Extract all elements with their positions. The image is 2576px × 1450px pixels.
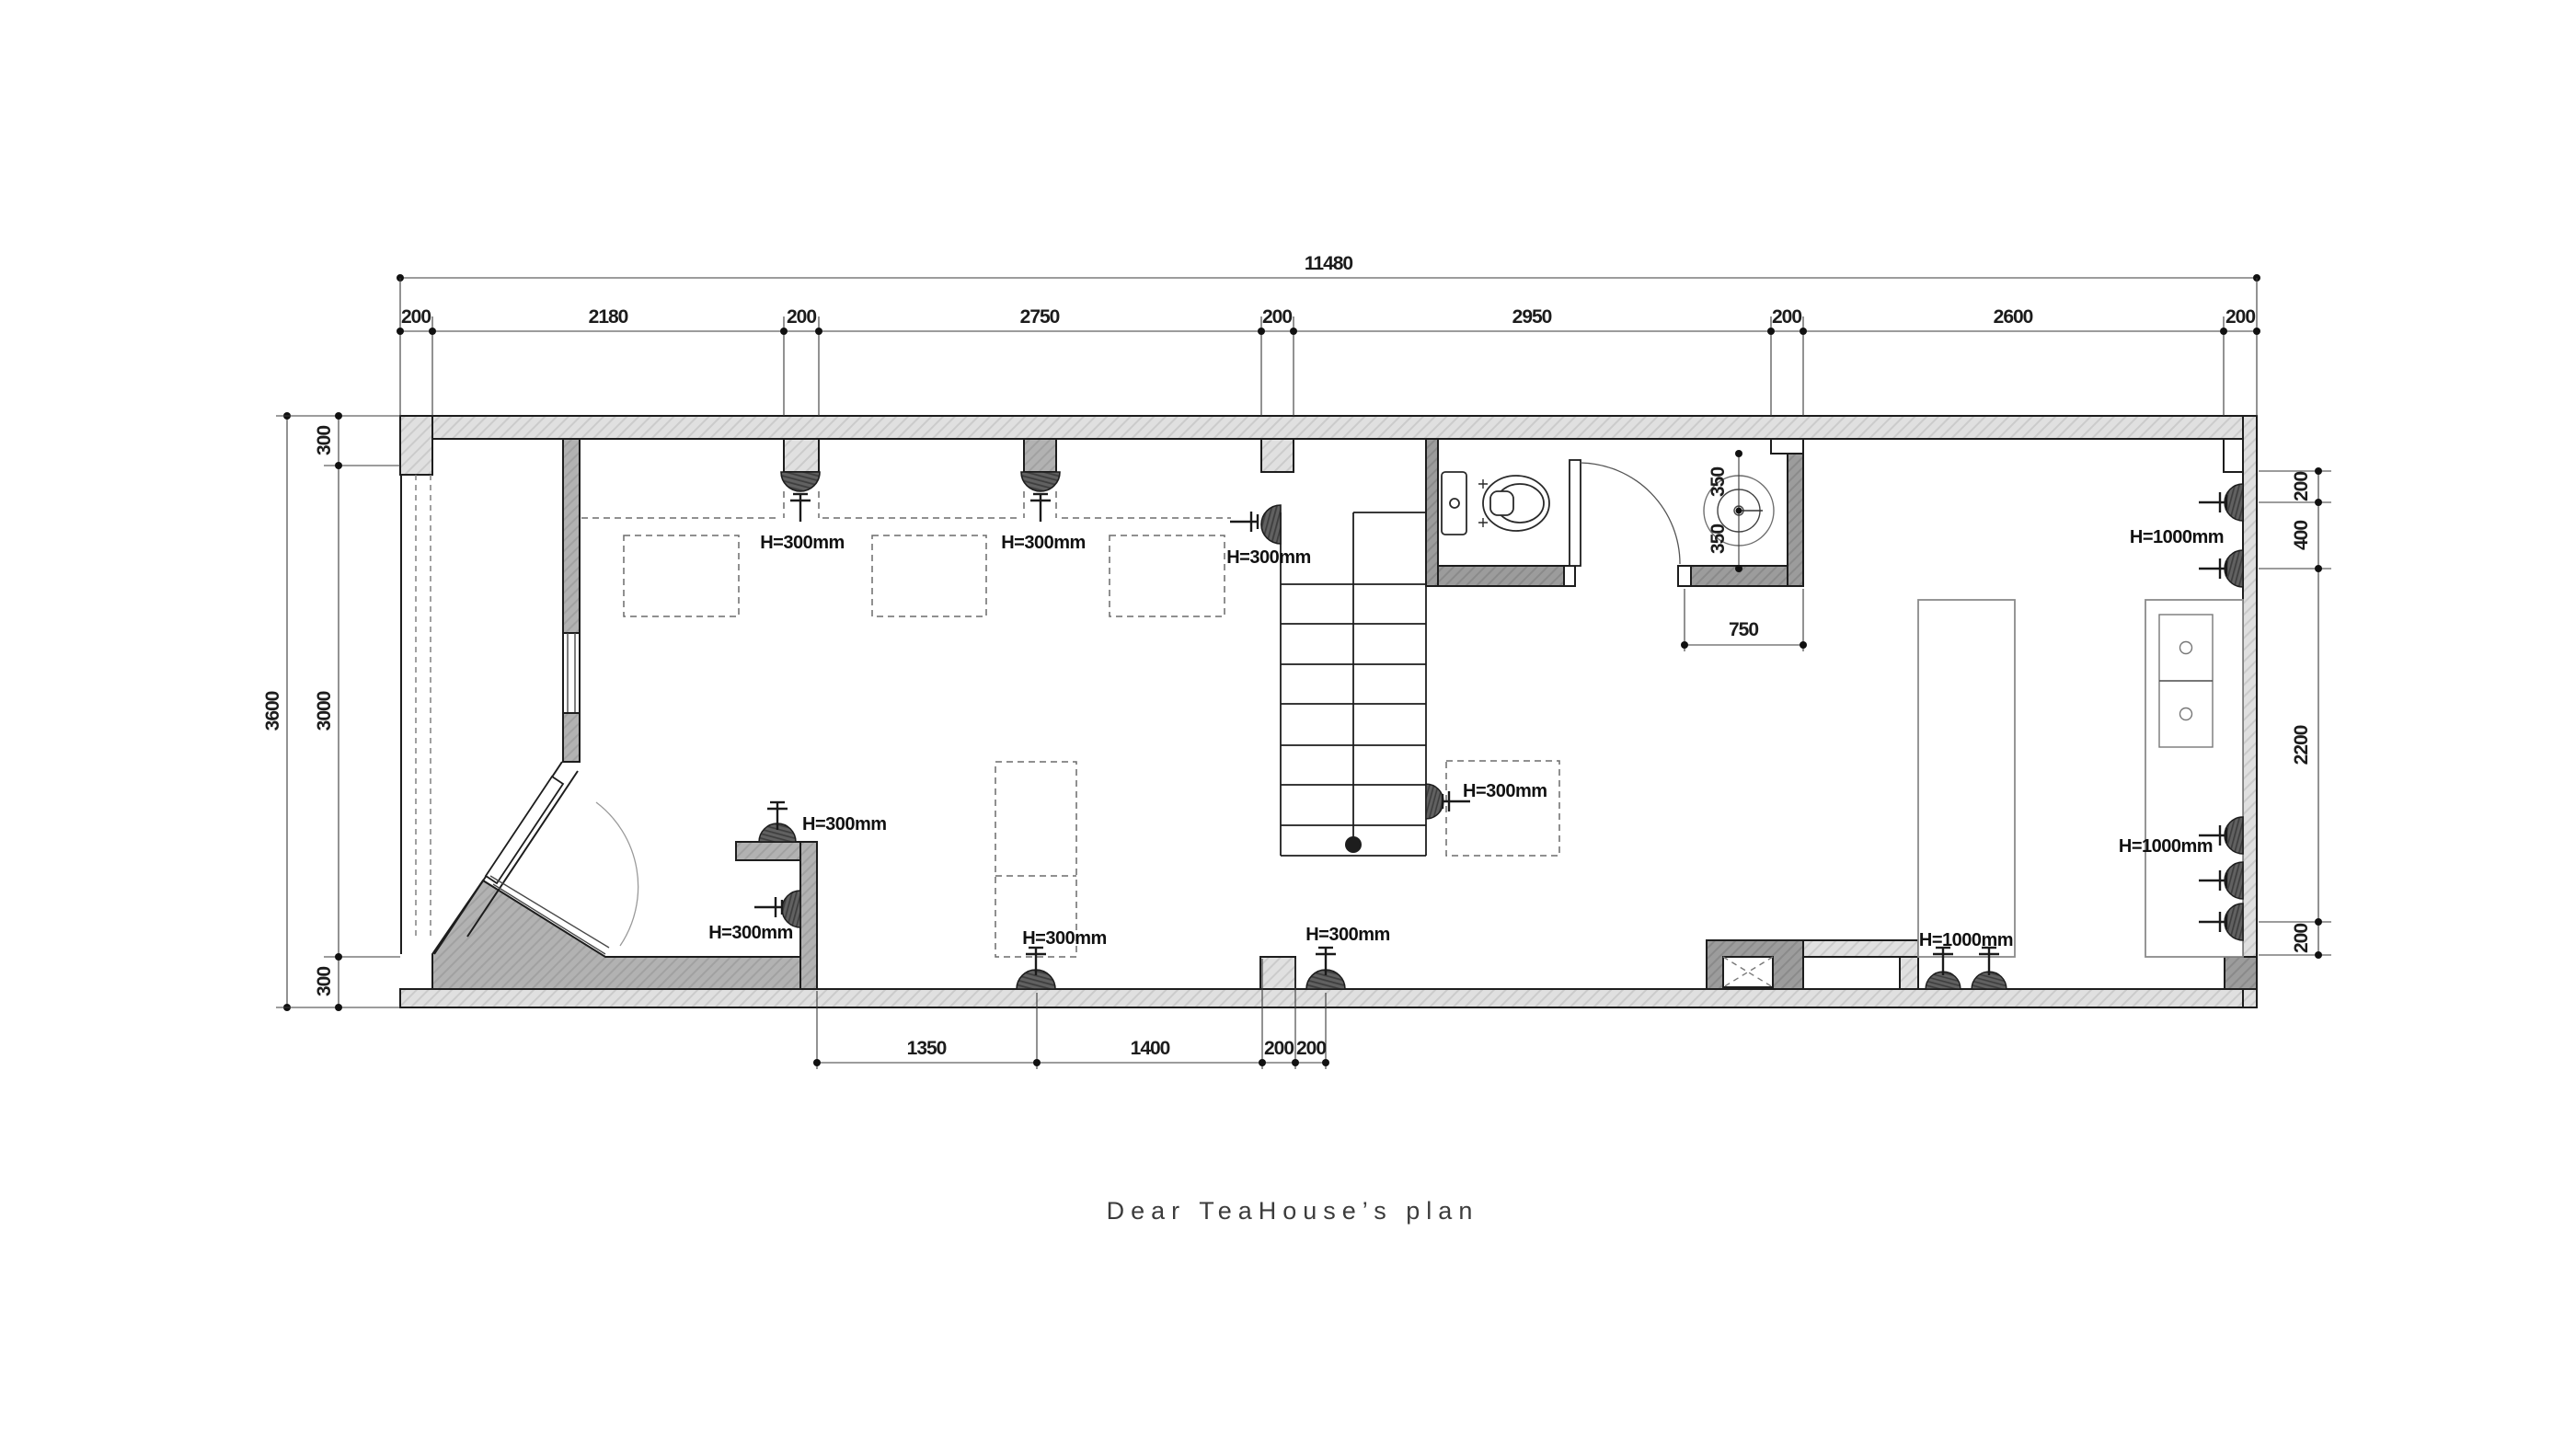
dim-extension-lines (817, 959, 1326, 1069)
dim-text: 200 (2225, 306, 2255, 328)
height-label: H=1000mm (2130, 527, 2224, 547)
pier-stair (1261, 439, 1294, 472)
low-counter (1803, 940, 1918, 957)
floor-plan-drawing: H=300mm H=300mm H=300mm H=300mm H=300mm … (0, 0, 2576, 1450)
plant-icon (2199, 492, 2227, 512)
plant-icon (754, 897, 783, 917)
toilet-icon (1442, 472, 1549, 535)
height-label: H=300mm (1022, 928, 1107, 949)
service-block (1707, 940, 1918, 989)
dimension-left: 3600 300 3000 300 (262, 412, 400, 1011)
table-low (872, 535, 986, 616)
stool (781, 472, 820, 491)
stools (759, 472, 2243, 989)
height-label: H=300mm (1463, 781, 1547, 801)
plant-icon (1030, 493, 1051, 522)
height-label: H=300mm (1305, 925, 1390, 945)
door-leaf (1570, 460, 1581, 566)
dim-text: 11480 (1305, 253, 1353, 274)
dim-text: 2750 (1020, 306, 1060, 328)
dim-text: 2950 (1512, 306, 1552, 328)
dim-extension-lines (400, 278, 2257, 416)
height-label: H=300mm (760, 533, 845, 553)
low-tables (581, 491, 1559, 957)
vestibule-window (563, 633, 580, 713)
floor-plan-page: H=300mm H=300mm H=300mm H=300mm H=300mm … (0, 0, 2576, 1450)
entry-zone (432, 762, 800, 989)
pier-column (784, 439, 819, 472)
dim-text: 1350 (907, 1038, 947, 1059)
stair-walk-start-dot (1345, 836, 1362, 853)
wall-top (400, 416, 2257, 439)
dim-text: 1400 (1131, 1038, 1170, 1059)
low-counter-leg (1900, 957, 1918, 989)
wall-vestibule (563, 713, 580, 762)
dim-text: 2180 (589, 306, 628, 328)
dim-text: 400 (2291, 521, 2312, 550)
stool (1021, 472, 1060, 491)
entry-door-swing-arc (596, 802, 638, 946)
dimension-bottom: 1350 1400 200 200 (813, 959, 1329, 1069)
plan-title: Dear TeaHouse’s plan (1107, 1197, 1479, 1225)
height-label: H=1000mm (1919, 930, 2013, 950)
entry-door-leaf-open (486, 777, 563, 883)
wall-vestibule (563, 439, 580, 633)
dim-text: 200 (1264, 1038, 1294, 1059)
height-label: H=1000mm (2119, 836, 2213, 857)
dim-text: 300 (314, 967, 335, 996)
dim-text: 200 (1772, 306, 1801, 328)
pier-top-left (400, 416, 432, 475)
height-label: H=300mm (1001, 533, 1086, 553)
dim-text: 200 (2291, 472, 2312, 501)
door-jamb (1678, 566, 1691, 586)
table-low (624, 535, 739, 616)
plant-icon (790, 493, 811, 522)
wall-notch-wc (1771, 439, 1803, 454)
stool (1426, 784, 1443, 819)
storefront-glazing (401, 475, 431, 954)
height-label: H=300mm (708, 923, 793, 943)
dim-text: 3000 (314, 691, 335, 731)
dim-text: 200 (401, 306, 431, 328)
table-low (1110, 535, 1225, 616)
dim-text: 350 (1708, 467, 1729, 497)
wall-wc-bottom (1438, 566, 1564, 586)
dim-text: 200 (1262, 306, 1292, 328)
wall-wc-bottom (1691, 566, 1803, 586)
dim-text: 200 (787, 306, 816, 328)
dim-text: 200 (1296, 1038, 1326, 1059)
bathroom-door (1564, 460, 1691, 586)
dimension-right: 200 400 2200 200 (2259, 467, 2331, 959)
island-counter (1918, 600, 2015, 957)
stool (1261, 505, 1281, 544)
right-wall-counter (2145, 600, 2243, 957)
table-by-stair (1446, 761, 1559, 856)
pier-bottom-right (2225, 957, 2257, 989)
pier-column (1024, 439, 1056, 472)
pier-bottom (1260, 957, 1295, 989)
door-swing-arc (1581, 463, 1680, 564)
dim-text: 300 (314, 426, 335, 455)
wall-bottom (400, 989, 2257, 1007)
dim-text: 2600 (1994, 306, 2033, 328)
dim-text: 750 (1729, 619, 1758, 640)
shaft (1723, 957, 1773, 987)
plant-icon (2199, 558, 2227, 579)
wall-notch-top-right (2224, 439, 2243, 472)
counter-side-bar (800, 842, 817, 989)
wall-right (2243, 416, 2257, 1007)
height-label: H=300mm (802, 814, 887, 834)
dim-text: 3600 (262, 691, 283, 731)
dim-text: 2200 (2291, 725, 2312, 765)
plant-icon (1230, 512, 1259, 532)
wall-wc-right (1788, 454, 1803, 586)
dimension-top: 11480 200 2180 200 2750 200 2950 200 260… (397, 253, 2260, 416)
dim-text: 350 (1708, 524, 1729, 554)
dim-text: 200 (2291, 924, 2312, 953)
stool (782, 891, 800, 927)
height-label: H=300mm (1226, 547, 1311, 568)
door-jamb (1564, 566, 1575, 586)
wall-wc-left (1426, 439, 1438, 586)
